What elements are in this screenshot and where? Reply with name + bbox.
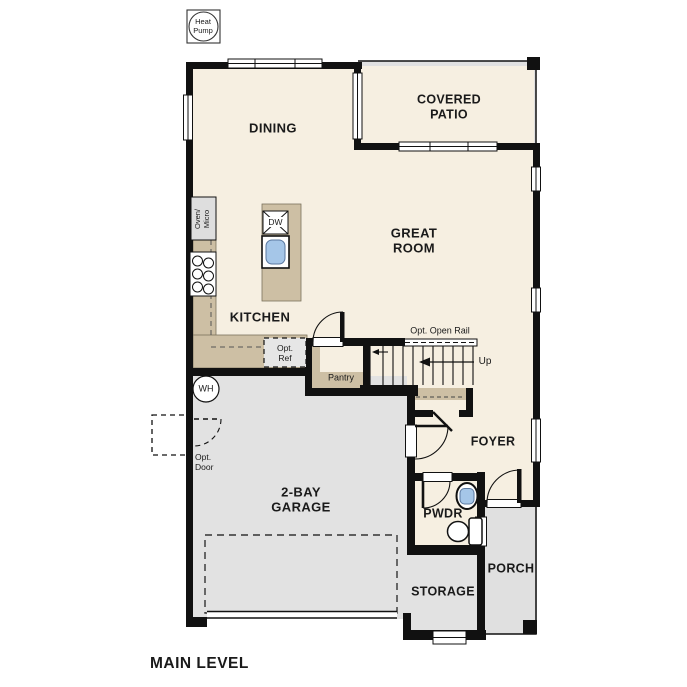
wall-pantry-top: [343, 338, 405, 346]
wall-left: [186, 62, 193, 627]
window-patio-slider: [399, 142, 497, 151]
coat-closet: [415, 388, 466, 410]
heat-pump-label: Heat Pump: [193, 18, 213, 36]
floor-plan: Heat Pump COVERED PATIO DINING GREAT ROO…: [0, 0, 687, 687]
wall-foyer-west-lower: [407, 457, 415, 555]
window-foyer-east: [532, 419, 541, 462]
wall-garage-bottom-left: [186, 617, 207, 627]
pwdr-label: PWDR: [423, 507, 462, 522]
wall-storage-left-stub: [403, 613, 411, 638]
wall-pantry-left: [305, 340, 312, 396]
foyer-label: FOYER: [471, 435, 516, 450]
window-greatroom-east-2: [532, 288, 541, 312]
page-title: MAIN LEVEL: [150, 655, 249, 673]
covered-patio-label: COVERED PATIO: [417, 92, 481, 122]
door-storage-exterior: [433, 631, 466, 644]
opt-ref-label: Opt. Ref: [277, 343, 293, 363]
great-room-label: GREAT ROOM: [391, 226, 438, 257]
door-garage-overhead: [207, 611, 397, 619]
opening-front-door: [487, 500, 521, 508]
wall-foyer-west-upper: [407, 390, 415, 425]
pwdr-sink-icon: [457, 483, 478, 509]
wall-closet-bottom-right: [459, 410, 473, 417]
storage-label: STORAGE: [411, 585, 475, 600]
wall-storage-right: [477, 555, 485, 638]
wh-label: WH: [199, 384, 214, 395]
wall-garage-top: [186, 368, 312, 376]
window-greatroom-east-1: [532, 167, 541, 191]
wall-pantry-right: [363, 340, 370, 388]
porch-post: [523, 620, 537, 634]
dining-label: DINING: [249, 120, 297, 135]
window-dining-east: [353, 73, 362, 139]
opening-pantry-door: [313, 338, 343, 347]
opening-pwdr-door: [423, 473, 452, 482]
opt-open-rail-label: Opt. Open Rail: [410, 326, 470, 337]
up-label: Up: [479, 356, 492, 368]
wall-pwdr-bottom: [407, 545, 485, 555]
window-dining-top: [228, 59, 322, 68]
oven-micro-label: Oven/ Micro: [194, 209, 212, 229]
opt-door-label: Opt. Door: [195, 452, 213, 472]
pantry-label: Pantry: [328, 373, 354, 384]
patio-post: [527, 57, 540, 70]
kitchen-label: KITCHEN: [230, 309, 291, 324]
opening-garage-entry: [406, 425, 417, 457]
wall-closet-right: [466, 388, 473, 410]
window-dining-left: [184, 95, 193, 140]
cooktop-icon: [190, 252, 216, 296]
dw-label: DW: [267, 217, 283, 227]
kitchen-sink-icon: [262, 236, 289, 268]
open-rail: [403, 339, 477, 346]
porch-label: PORCH: [488, 562, 535, 577]
garage-label: 2-BAY GARAGE: [271, 485, 330, 516]
floor-plan-drawing: [0, 0, 687, 687]
